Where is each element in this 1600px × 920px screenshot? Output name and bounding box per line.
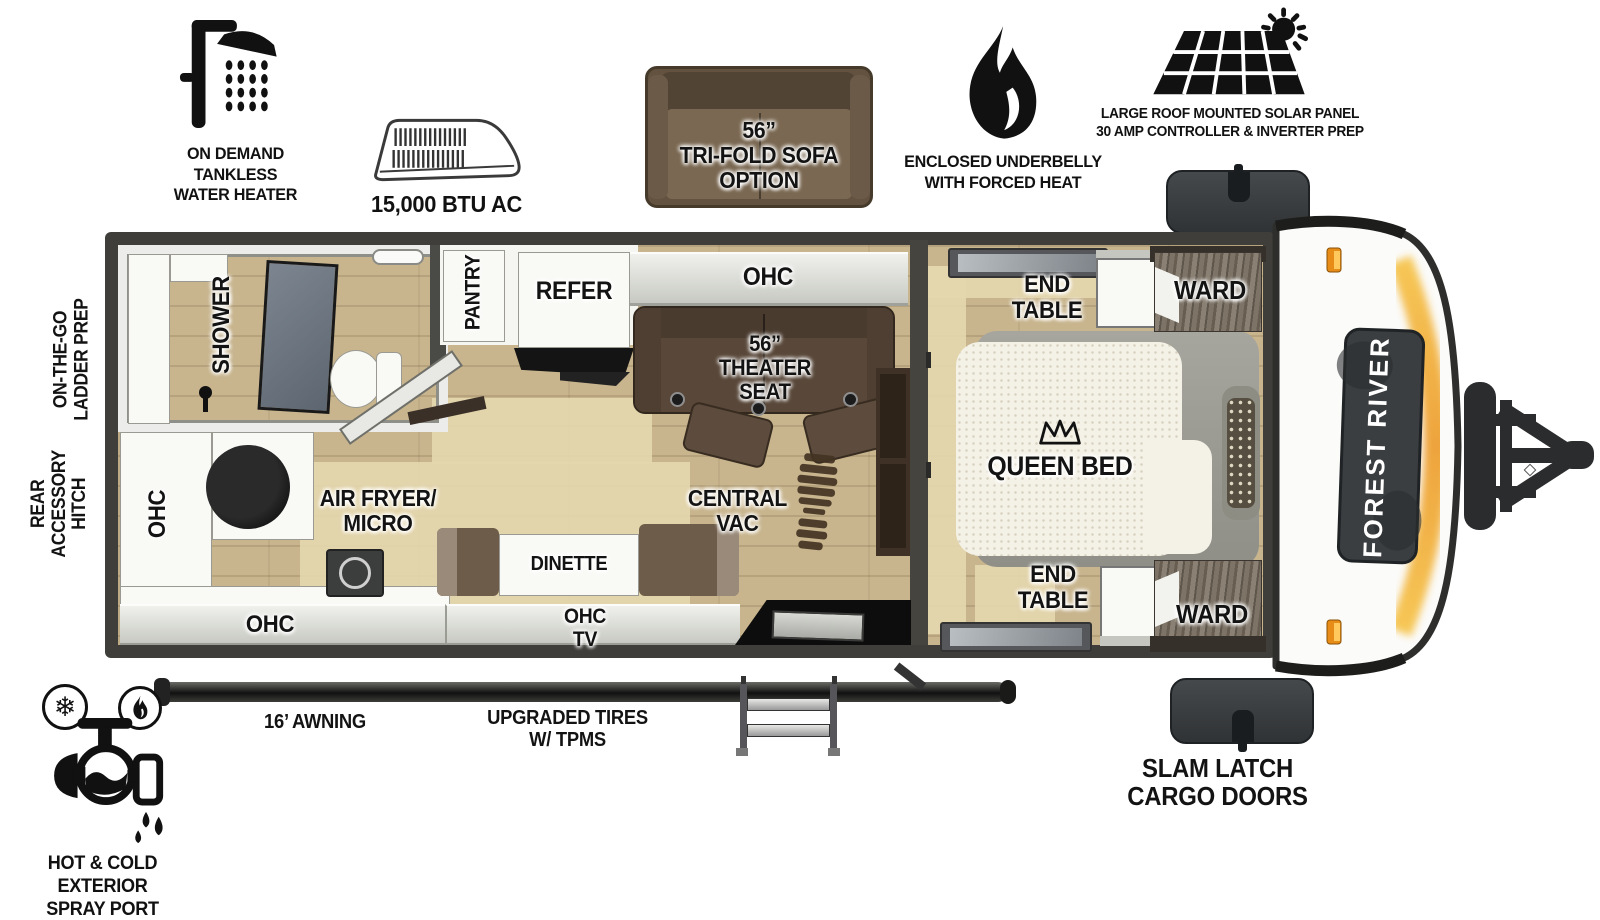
tall-cabinet (876, 368, 910, 556)
stove (326, 549, 384, 597)
marker-light (1327, 620, 1341, 644)
dinette-bench-left (437, 528, 499, 596)
rear-hitch-callout: REAR ACCESSORY HITCH (29, 435, 91, 573)
awning-bar (160, 682, 1008, 702)
ward-bottom-face (1150, 636, 1266, 652)
cargo-latch-top (1228, 172, 1250, 202)
end-table-top-face (1096, 258, 1158, 328)
cabinet-panel (880, 374, 906, 458)
crown-icon (1036, 418, 1084, 448)
cargo-doors-callout: SLAM LATCH CARGO DOORS (1096, 754, 1340, 810)
theater-armrest-left (635, 308, 661, 412)
air-fryer-label: AIR FRYER/ MICRO (295, 486, 461, 536)
entry-step-ladder (736, 676, 846, 760)
sofa-back-cushion (660, 72, 856, 114)
ladder-foot (736, 748, 748, 756)
queen-bed-label: QUEEN BED (963, 452, 1156, 481)
sofa-armrest-left (648, 75, 668, 199)
floorplan-diagram: ON DEMAND TANKLESS WATER HEATER 15,000 B… (0, 0, 1600, 920)
door-hinge (926, 352, 931, 368)
living-ohc-top-label: OHC (722, 264, 814, 291)
bathroom-vanity (128, 254, 170, 424)
cargo-latch-nub-bottom (1238, 740, 1247, 752)
stove-burner (339, 557, 371, 589)
solar-caption: LARGE ROOF MOUNTED SOLAR PANEL 30 AMP CO… (1092, 106, 1368, 141)
ladder-rail (830, 684, 837, 750)
shower-glass-door (257, 260, 338, 414)
ward-bottom-label: WARD (1166, 600, 1258, 628)
window-glass (958, 254, 1098, 272)
ladder-foot (828, 748, 840, 756)
kitchen-ohc-side-label: OHC (145, 459, 171, 569)
sofa-armrest-right (850, 75, 870, 199)
ladder-tread (747, 724, 830, 737)
end-table-bottom-face (1100, 566, 1162, 638)
roof-vent (372, 249, 424, 265)
ward-top-label: WARD (1164, 276, 1256, 304)
bedroom-window-bottom (940, 622, 1092, 652)
solar-panel-icon (1138, 4, 1320, 104)
cupholder (670, 392, 685, 407)
end-table-top-label: END TABLE (1004, 272, 1090, 324)
refrigerator-label: REFER (519, 278, 629, 305)
front-cap: FOREST RIVER (1250, 190, 1600, 710)
shower-icon (178, 12, 286, 136)
underbelly-caption: ENCLOSED UNDERBELLY WITH FORCED HEAT (903, 152, 1103, 193)
toilet-bowl (330, 350, 382, 408)
kitchen-sink (206, 445, 290, 529)
pantry-label: PANTRY (463, 237, 486, 347)
awning-callout: 16’ AWNING (237, 712, 393, 734)
ohc-tv-label: OHC TV (548, 606, 622, 651)
water-heater-caption: ON DEMAND TANKLESS WATER HEATER (152, 144, 318, 206)
awning-end-cap (1000, 680, 1016, 704)
ladder-prep-callout: ON-THE-GO LADDER PREP (51, 291, 92, 429)
cargo-latch-nub-top (1234, 164, 1243, 174)
sofa-caption: 56” TRI-FOLD SOFA OPTION (675, 118, 842, 192)
ac-unit-icon (366, 114, 524, 186)
bath-faucet-stem (203, 396, 208, 412)
dinette-label: DINETTE (510, 554, 628, 576)
ac-caption: 15,000 BTU AC (349, 190, 544, 218)
theater-seat-label: 56” THEATER SEAT (691, 332, 838, 403)
cargo-latch-bottom (1232, 710, 1254, 742)
tires-callout: UPGRADED TIRES W/ TPMS (464, 708, 671, 751)
cupholder (843, 392, 858, 407)
shower-label: SHOWER (209, 265, 235, 385)
door-hinge (926, 462, 931, 478)
kitchen-counter-bottom (120, 586, 450, 606)
ladder-rail (740, 684, 747, 750)
spray-port-caption: HOT & COLD EXTERIOR SPRAY PORT (5, 852, 200, 920)
forest-river-badge: FOREST RIVER (1330, 328, 1428, 563)
spray-port-icon (26, 716, 178, 848)
window-glass (950, 628, 1082, 646)
divider-wall (910, 240, 928, 645)
end-table-bottom-label: END TABLE (1010, 562, 1096, 614)
dinette-backrest-left (437, 528, 457, 596)
entry-step (772, 610, 865, 641)
boot-print-icon (785, 450, 845, 557)
cabinet-panel (880, 464, 906, 548)
marker-light (1327, 248, 1341, 272)
flame-icon (952, 24, 1050, 146)
hitch (1464, 382, 1594, 530)
kitchen-ohc-bottom-label: OHC (224, 612, 316, 638)
ladder-tread (747, 698, 830, 711)
